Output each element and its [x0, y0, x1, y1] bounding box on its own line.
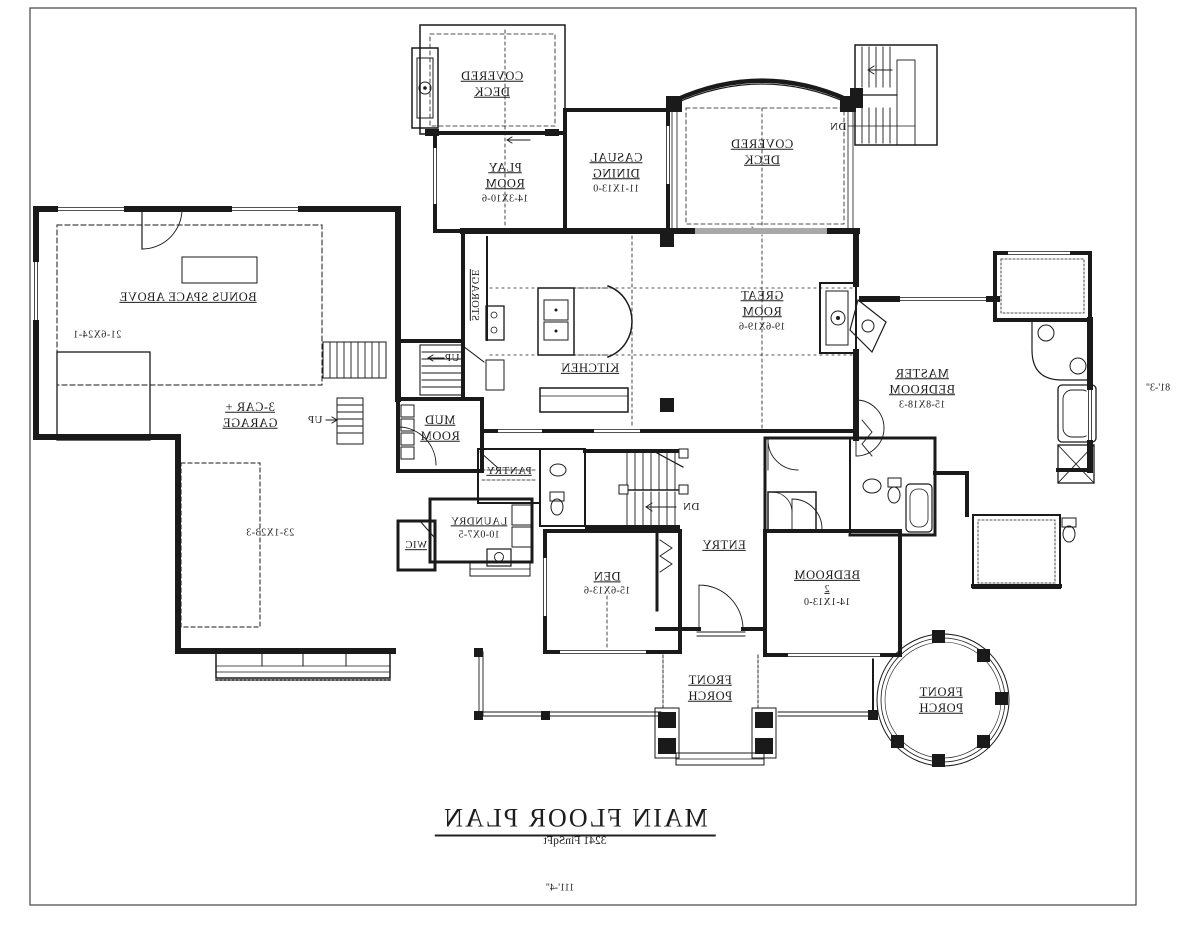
room-label-storage: STORAGE: [467, 269, 481, 321]
dimension-overall-width: 111'-4": [546, 883, 574, 894]
room-label-front-porch-center: FRONT PORCH: [678, 672, 742, 705]
dim-bonus-space: 21-6X24-1: [73, 329, 121, 342]
room-label-bedroom-2: BEDROOM214-1X13-0: [790, 567, 864, 609]
floorplan-sheet: COVERED DECK PLAY ROOM14-3X10-6 CASUAL D…: [0, 0, 1191, 933]
dim-garage: 23-1X23-3: [246, 527, 294, 540]
floorplan-drawing: [0, 0, 1191, 933]
room-label-bonus-space: BONUS SPACE ABOVE: [78, 289, 298, 305]
annotation-dn-deck: DN: [830, 121, 847, 133]
annotation-dn-stair: DN: [683, 501, 700, 513]
room-label-garage: 3-CAR + GARAGE: [213, 399, 287, 432]
room-label-covered-deck-left: COVERED DECK: [450, 68, 534, 101]
plan-title: MAIN FLOOR PLAN: [434, 804, 715, 837]
room-label-master-bedroom: MASTER BEDROOM15-8X18-3: [885, 365, 959, 411]
room-label-casual-dining: CASUAL DINING11-1X13-0: [584, 149, 648, 195]
room-label-kitchen: KITCHEN: [561, 360, 619, 376]
room-label-great-room: GREAT ROOM19-6X19-6: [735, 287, 789, 333]
room-label-covered-deck-right: COVERED DECK: [720, 136, 804, 169]
room-label-den: DEN15-6X13-6: [580, 568, 634, 597]
room-label-entry: ENTRY: [702, 537, 745, 553]
annotation-up-garage: UP: [307, 414, 322, 426]
room-label-front-porch-round: FRONT PORCH: [909, 684, 973, 717]
dimension-overall-height: 81'-3": [1146, 383, 1170, 394]
sheet-border: [30, 8, 1136, 905]
room-label-pantry: PANTRY: [486, 464, 531, 478]
room-label-play-room: PLAY ROOM14-3X10-6: [478, 159, 532, 205]
plan-subtitle: 3241 FinSqFt: [544, 835, 607, 847]
annotation-up-main: UP: [444, 352, 459, 364]
room-label-wic: WIC: [405, 539, 427, 553]
room-label-mud-room: MUD ROOM: [413, 412, 467, 445]
room-label-laundry: LAUNDRY10-0X7-5: [447, 514, 511, 541]
